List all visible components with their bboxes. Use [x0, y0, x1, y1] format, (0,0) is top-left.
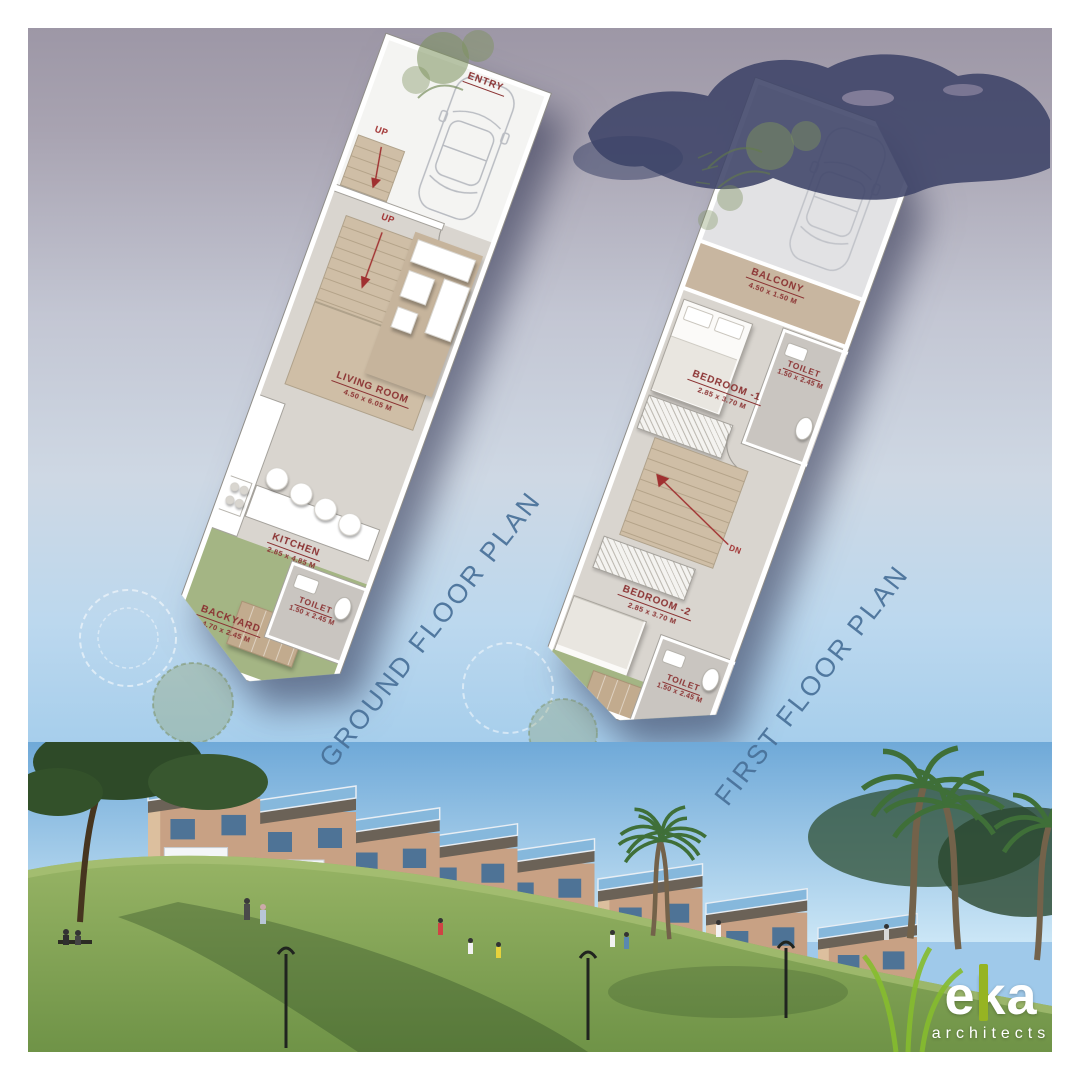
logo-k-stem [979, 964, 988, 1021]
logo-brand-text: eka [944, 966, 1037, 1026]
logo-tagline: architects [921, 1025, 1052, 1043]
plan-trees-gf [388, 28, 528, 118]
site-render [28, 742, 1052, 1052]
logo: eka architects [921, 969, 1052, 1043]
plan-trees-ff [678, 108, 848, 238]
logo-brand: eka [944, 969, 1037, 1023]
poster-page: ENTRY UP UP LIVING ROOM 4.50 x 6.05 M [0, 0, 1080, 1080]
sketch-trees-left [68, 568, 248, 758]
artwork-area: ENTRY UP UP LIVING ROOM 4.50 x 6.05 M [28, 28, 1052, 1052]
